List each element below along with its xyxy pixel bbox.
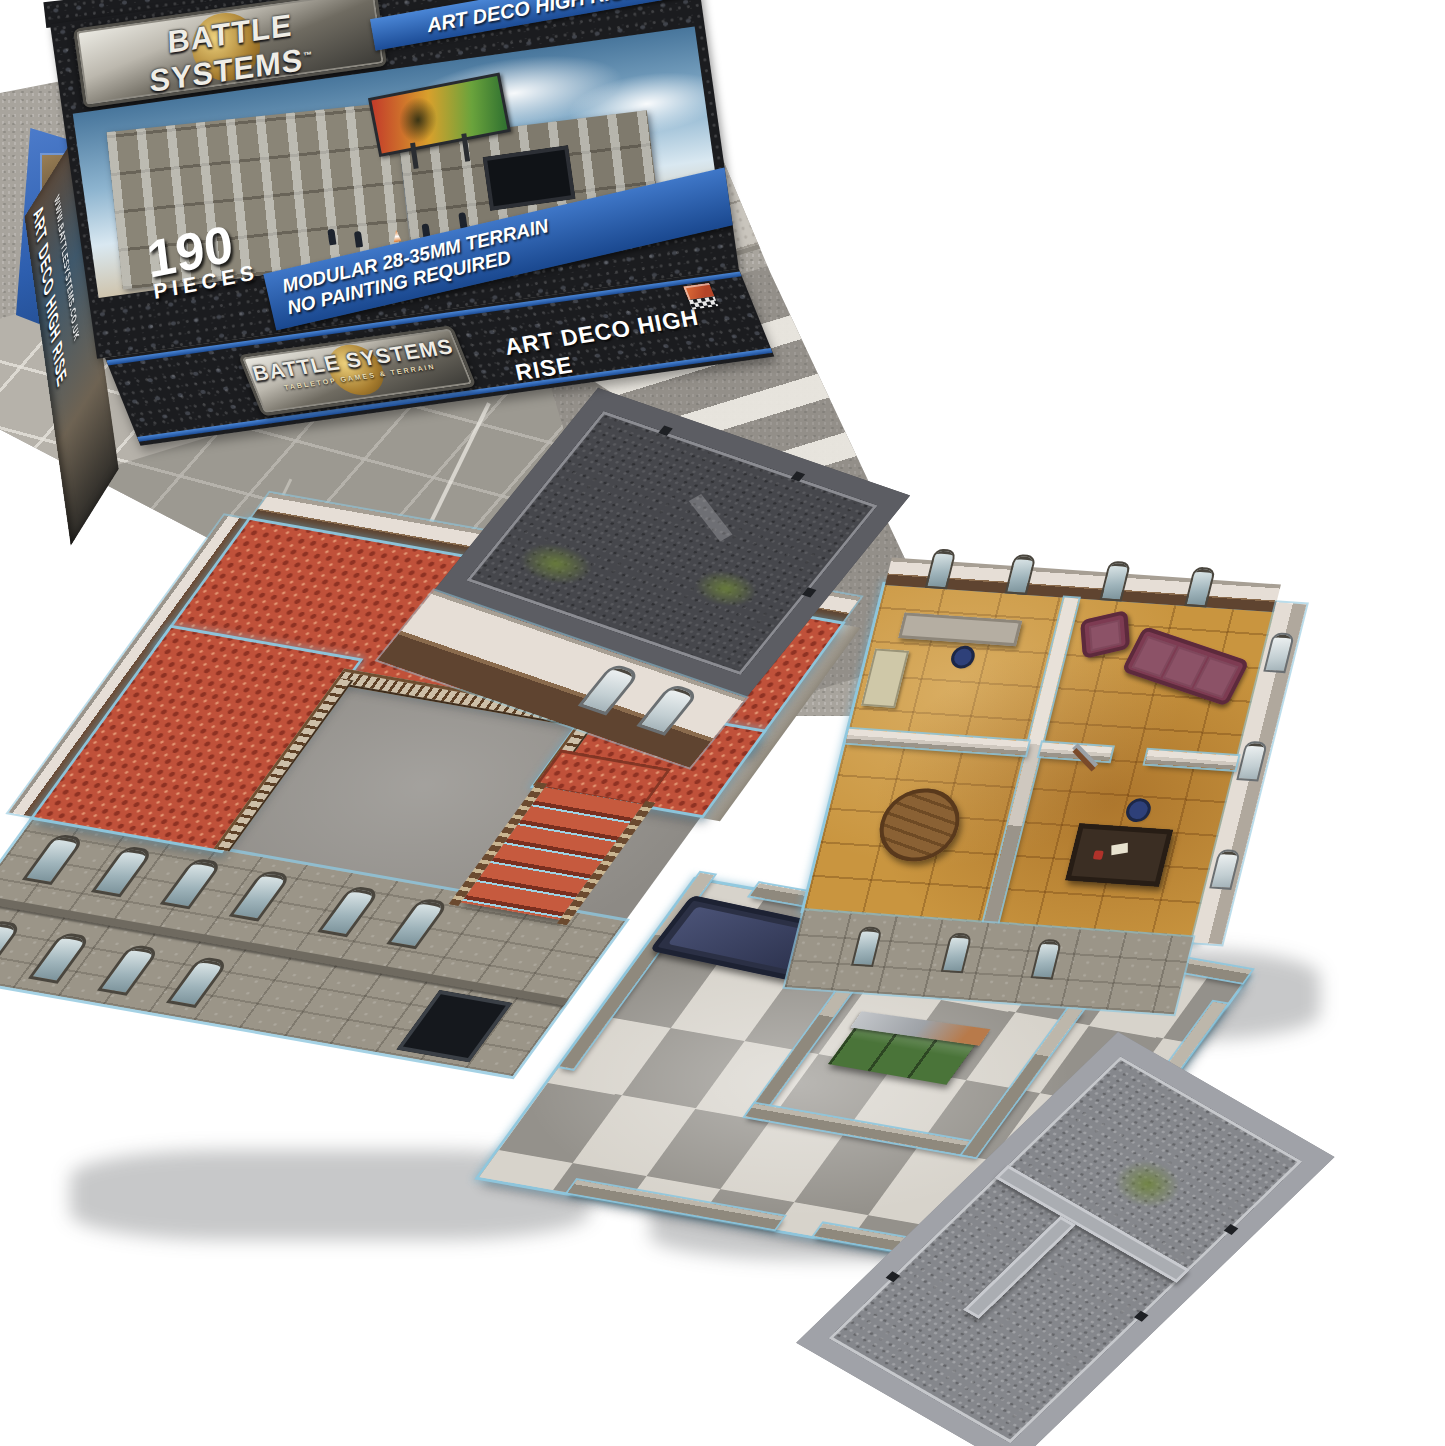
connector-notch <box>802 587 817 597</box>
moss-patch <box>1102 1150 1193 1217</box>
connector-notch <box>886 1271 901 1282</box>
storey-ledge <box>0 894 569 1005</box>
connector-notch <box>791 471 806 481</box>
pieces-badge: 190 PIECES <box>143 218 260 301</box>
papers <box>1111 843 1127 855</box>
arched-window <box>22 833 86 885</box>
arched-window <box>1005 554 1037 595</box>
arched-window <box>1031 939 1063 980</box>
wooden-crate-desk <box>1065 823 1173 887</box>
arched-window <box>229 870 293 922</box>
arched-window <box>28 932 92 984</box>
arched-window <box>166 956 230 1008</box>
arched-window <box>91 845 155 897</box>
arched-window <box>0 919 23 971</box>
arched-window <box>941 932 973 973</box>
arched-window <box>1184 567 1216 608</box>
moss-patch <box>509 536 602 592</box>
arched-window <box>386 897 450 949</box>
dark-doorway <box>396 990 512 1062</box>
moss-patch <box>685 564 766 613</box>
roof-cross-wall <box>963 1216 1076 1319</box>
red-item <box>1093 850 1104 859</box>
front-box-title: ART DECO HIGH RISE <box>499 295 771 386</box>
arched-window <box>1209 849 1241 890</box>
lounge-office-module <box>804 585 1274 937</box>
product-photo: ART DECO HIGH RISE WWW.BATTLESYSTEMS.CO.… <box>0 0 1445 1446</box>
arched-window <box>636 683 699 736</box>
arched-window <box>97 944 161 996</box>
arched-window <box>160 857 224 909</box>
connector-notch <box>658 426 673 436</box>
box-title: ART DECO HIGH RISE <box>425 0 638 37</box>
arched-window <box>925 548 957 589</box>
roof-debris <box>689 494 733 541</box>
arched-window <box>578 663 641 716</box>
connector-notch <box>1224 1224 1239 1235</box>
arched-window <box>851 926 883 967</box>
connector-notch <box>1134 1311 1149 1322</box>
arched-window <box>317 885 381 937</box>
arched-window <box>1099 561 1131 602</box>
arched-window <box>1263 632 1295 673</box>
trademark: ™ <box>303 50 313 61</box>
arched-window <box>1236 741 1268 782</box>
